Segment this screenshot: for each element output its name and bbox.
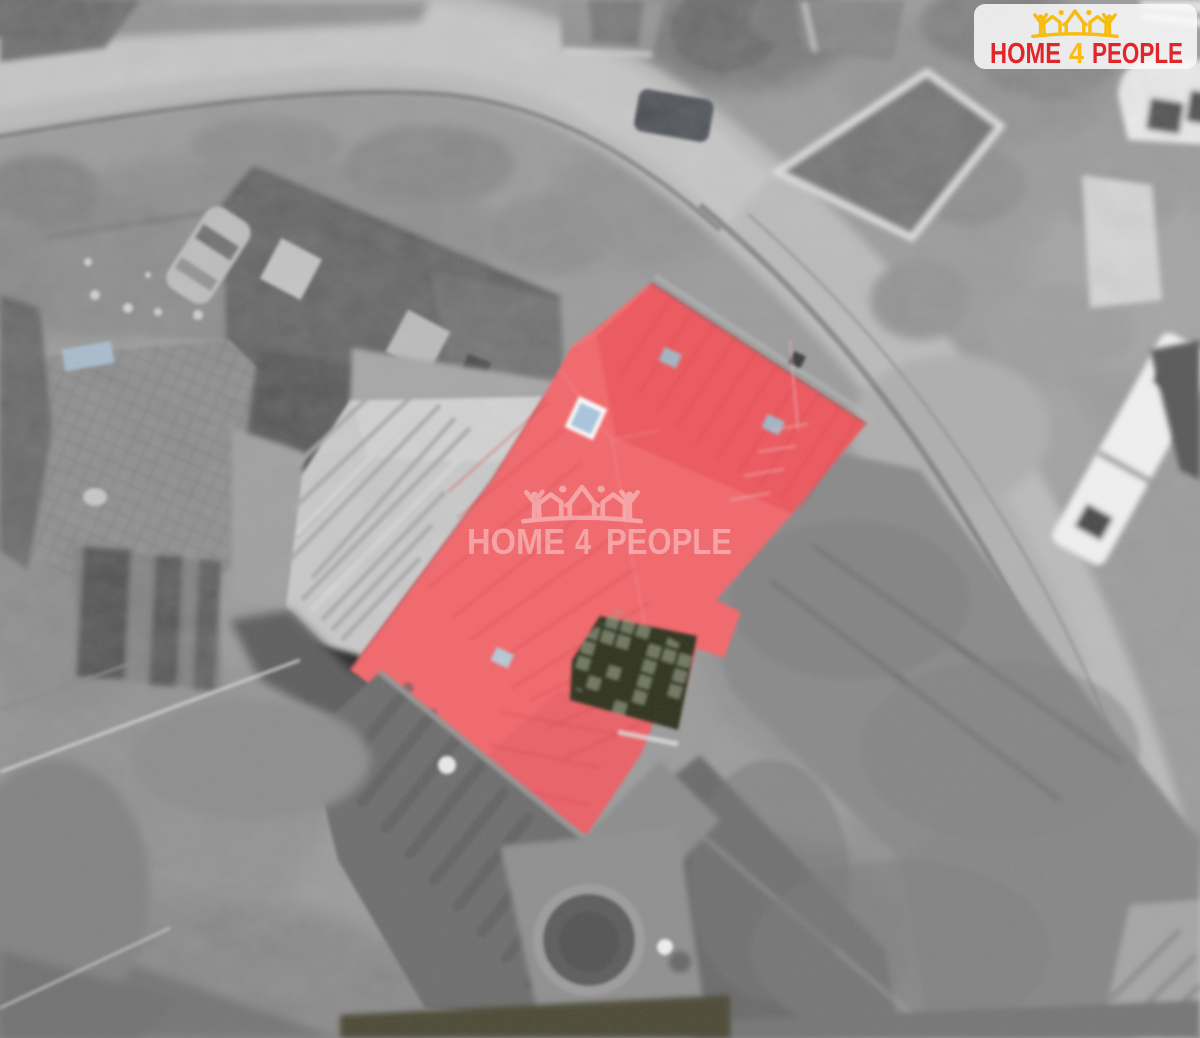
svg-text:HOME: HOME [990, 38, 1061, 70]
svg-text:HOME: HOME [467, 521, 565, 562]
svg-text:PEOPLE: PEOPLE [606, 521, 732, 562]
svg-text:PEOPLE: PEOPLE [1092, 38, 1183, 70]
svg-text:4: 4 [1069, 38, 1084, 70]
svg-text:4: 4 [575, 521, 591, 562]
